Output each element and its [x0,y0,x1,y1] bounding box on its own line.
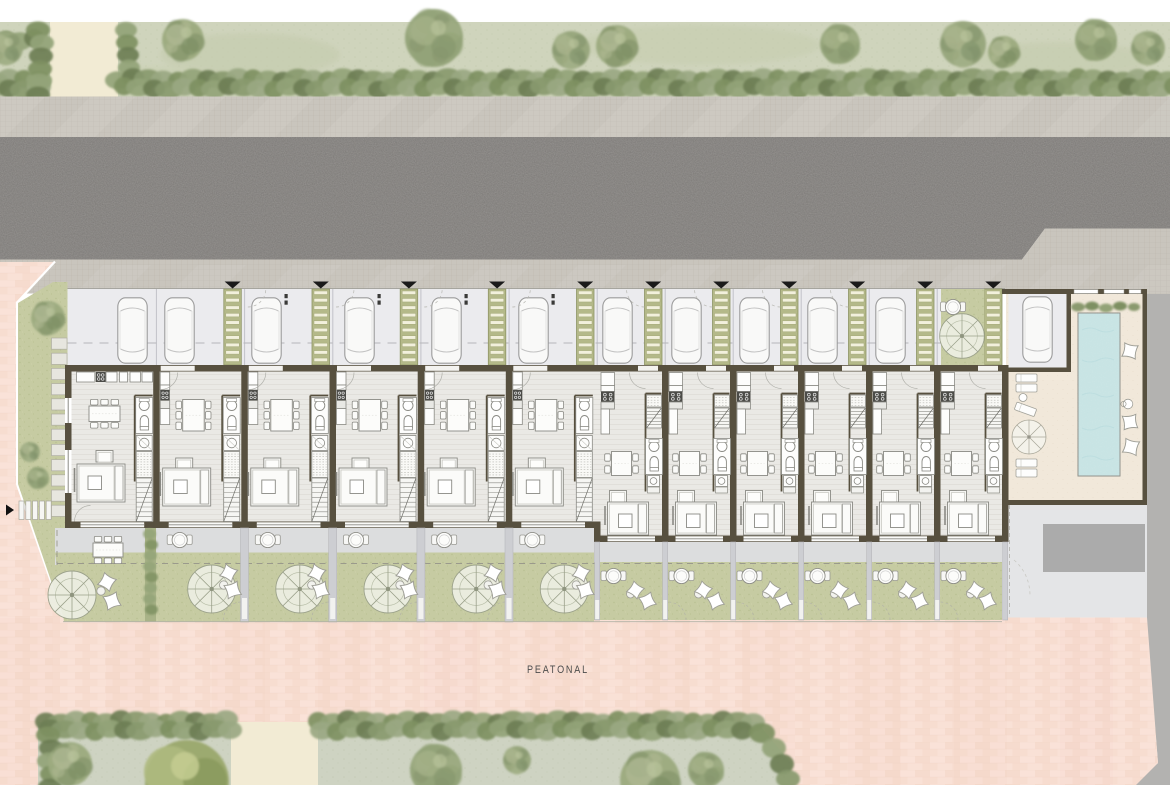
svg-text:PEATONAL: PEATONAL [527,664,589,676]
